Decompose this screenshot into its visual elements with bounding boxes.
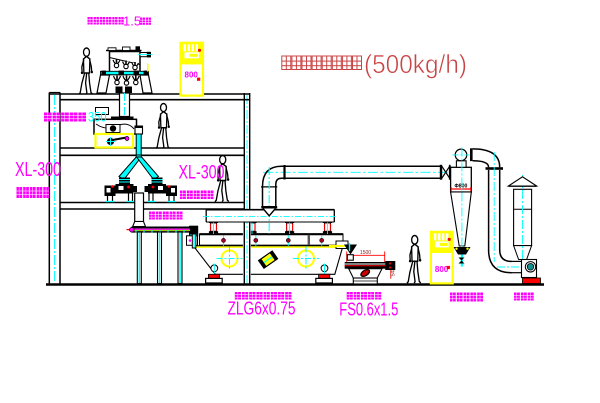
svg-text:800: 800 [185,70,199,79]
svg-text:XL-300: XL-300 [15,159,61,181]
svg-text:350: 350 [88,109,107,125]
svg-text:XL-300: XL-300 [179,163,225,184]
svg-text:(500kg/h): (500kg/h) [364,49,467,79]
svg-text:ZLG6x0.75: ZLG6x0.75 [228,299,296,319]
svg-text:1.5: 1.5 [123,14,141,29]
svg-text:FS0.6x1.5: FS0.6x1.5 [339,300,398,320]
svg-text:1500: 1500 [360,250,371,256]
svg-text:Φ800: Φ800 [455,184,468,190]
